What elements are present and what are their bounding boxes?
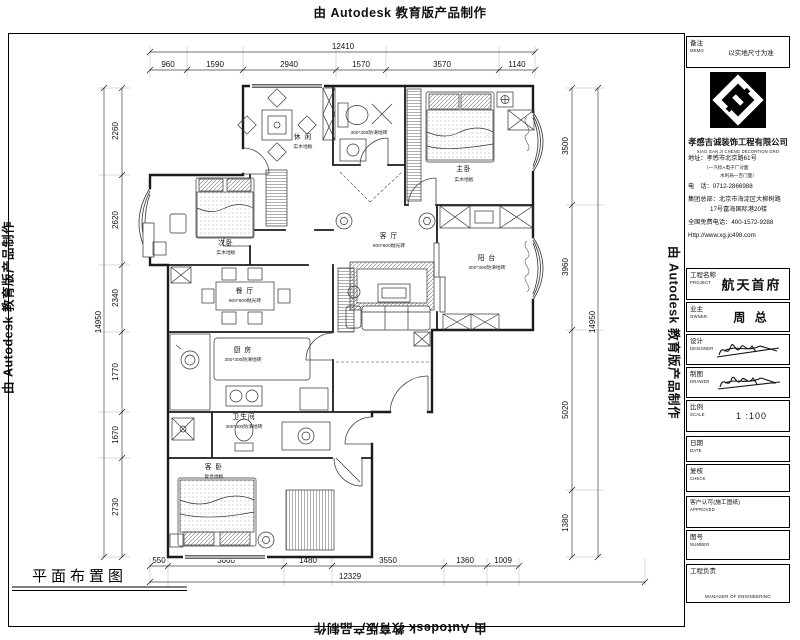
svg-text:3550: 3550 (379, 556, 397, 565)
svg-text:300*300防滑地砖: 300*300防滑地砖 (224, 356, 261, 363)
dimension-labels-left: 14950 2260 2620 2340 1770 1670 2730 (94, 122, 120, 516)
svg-text:300*300防滑地砖: 300*300防滑地砖 (468, 264, 505, 271)
address-note-1: （一汽综A电子厂对面 (688, 165, 789, 172)
room-label-dining: 餐 厅 (236, 286, 254, 295)
svg-text:1670: 1670 (111, 426, 120, 444)
company-block: 孝感吉诚装饰工程有限公司 XIAO GAN JI CHENG DECORTION… (686, 70, 790, 154)
svg-text:实木地板: 实木地板 (216, 249, 235, 256)
dim-top-total: 12410 (332, 42, 355, 51)
svg-text:800*800抛光砖: 800*800抛光砖 (373, 242, 405, 249)
company-logo-icon (710, 72, 766, 128)
dimension-labels-top: 12410 960 1590 2940 1570 3570 1140 (161, 42, 526, 69)
room-label-bath-top: 300*300防滑地砖 (350, 129, 387, 136)
svg-text:550: 550 (152, 556, 166, 565)
hq-line1: 北京市海淀区大柳树路 (719, 196, 781, 203)
scale-row: 比例 SCALE 1 :100 (686, 400, 790, 432)
room-label-master: 主卧 (456, 164, 472, 173)
hotline-value: 400-1572-9288 (731, 219, 773, 226)
hq-label: 集团总部： (688, 196, 719, 203)
project-name: 航天首府 (717, 275, 786, 294)
svg-text:1590: 1590 (206, 60, 224, 69)
memo-value: 以实地尺寸为准 (715, 47, 787, 57)
room-label-living: 客 厅 (380, 231, 398, 240)
furniture-guest-bedroom (170, 458, 360, 550)
svg-text:2340: 2340 (111, 289, 120, 307)
check-label-en: CHECK (690, 476, 706, 481)
address-value: 孝感市北京路61号 (707, 155, 757, 162)
room-label-leisure: 休 闲 (294, 132, 312, 141)
memo-label-en: MEMO (690, 48, 704, 53)
dim-left-total: 14950 (94, 310, 103, 333)
designer-row: 设计 DESIGNER (686, 334, 790, 365)
svg-text:5020: 5020 (561, 401, 570, 419)
room-label-bath-bottom: 卫生间 (232, 412, 255, 421)
manager-row: 工程负责 MANAGER OF ENGINEERING (686, 564, 790, 603)
check-label: 复核 (690, 468, 706, 476)
scale-value: 1 :100 (717, 411, 786, 421)
phone-label: 电 话： (688, 183, 713, 190)
number-label-en: NUMBER (690, 542, 709, 547)
svg-text:2940: 2940 (280, 60, 298, 69)
drawer-row: 制图 DRAWER (686, 367, 790, 398)
svg-text:3500: 3500 (561, 137, 570, 155)
designer-label: 设计 (690, 338, 713, 346)
dim-bottom-total: 12329 (339, 572, 362, 581)
floor-plan: 12410 960 1590 2940 1570 3570 1140 14950… (0, 0, 800, 640)
svg-text:800*800抛光砖: 800*800抛光砖 (229, 297, 261, 304)
svg-text:3960: 3960 (561, 258, 570, 276)
room-label-kitchen: 厨 房 (234, 345, 252, 354)
website: Http://www.xg.jc498.com (688, 232, 789, 241)
project-label: 工程名称 (690, 272, 716, 280)
dimension-labels-right: 14950 3500 3960 5020 1380 (561, 137, 597, 532)
designer-signature (713, 337, 785, 363)
address-label: 地址： (688, 155, 707, 162)
contact-info: 地址：孝感市北京路61号 （一汽综A电子厂对面 水利局一百门面） 电 话：071… (688, 155, 789, 242)
hq-line2: 17号富海国际港20楼 (688, 206, 789, 215)
dimension-chain-right (566, 85, 604, 560)
number-label: 图号 (690, 534, 709, 542)
approved-label: 客户认可(施工图纸) (690, 500, 740, 507)
svg-text:实木地板: 实木地板 (293, 143, 312, 150)
company-name: 孝感吉诚装饰工程有限公司 (686, 136, 790, 148)
owner-label-en: OWNER (690, 314, 707, 319)
plan-title: 平面布置图 (12, 568, 187, 591)
furniture-leisure-room (238, 89, 316, 161)
room-label-guest: 客 卧 (205, 462, 223, 471)
hotline-label: 全国免费电话： (688, 219, 731, 226)
number-row: 图号 NUMBER (686, 530, 790, 560)
svg-text:平面布置图: 平面布置图 (32, 568, 127, 585)
furniture-bath-bottom (172, 418, 330, 451)
svg-text:复合地板: 复合地板 (204, 473, 223, 480)
owner-row: 业主 OWNER 周 总 (686, 302, 790, 332)
drawer-label-en: DRAWER (690, 379, 710, 384)
approved-label-en: APPROVED (690, 507, 740, 512)
furniture-master-bedroom (407, 89, 513, 201)
svg-text:1380: 1380 (561, 514, 570, 532)
room-label-balcony: 阳 台 (478, 253, 496, 262)
address-note-2: 水利局一百门面） (688, 173, 789, 180)
svg-text:1360: 1360 (456, 556, 474, 565)
svg-text:1140: 1140 (508, 60, 526, 69)
svg-text:1570: 1570 (352, 60, 370, 69)
memo-label: 备注 (690, 40, 704, 48)
date-label-en: DATE (690, 448, 703, 453)
project-label-en: PROJECT (690, 280, 716, 285)
svg-text:2260: 2260 (111, 122, 120, 140)
scale-label-en: SCALE (690, 412, 705, 417)
phone-value: 0712-2866988 (713, 183, 753, 190)
furniture-kitchen (170, 334, 328, 410)
svg-text:3570: 3570 (433, 60, 451, 69)
owner-name: 周 总 (717, 309, 786, 326)
designer-label-en: DESIGNER (690, 346, 713, 351)
manager-label-en: MANAGER OF ENGINEERING (687, 594, 789, 599)
approved-row: 客户认可(施工图纸) APPROVED (686, 496, 790, 528)
svg-text:1770: 1770 (111, 363, 120, 381)
svg-text:2620: 2620 (111, 211, 120, 229)
dim-right-total: 14950 (588, 310, 597, 333)
svg-text:实木地板: 实木地板 (454, 176, 473, 183)
drawer-label: 制图 (690, 371, 710, 379)
svg-text:2730: 2730 (111, 498, 120, 516)
scale-label: 比例 (690, 404, 705, 412)
furniture-dining (171, 267, 290, 324)
check-row: 复核 CHECK (686, 464, 790, 492)
manager-label: 工程负责 (690, 568, 716, 576)
memo-row: 备注 MEMO 以实地尺寸为准 (686, 36, 790, 68)
svg-text:300*300防滑地砖: 300*300防滑地砖 (225, 423, 262, 430)
company-name-en: XIAO GAN JI CHENG DECORTION GRO (686, 149, 790, 154)
svg-text:1009: 1009 (494, 556, 512, 565)
project-row: 工程名称 PROJECT 航天首府 (686, 268, 790, 300)
room-label-second: 次卧 (218, 238, 234, 247)
svg-text:960: 960 (161, 60, 175, 69)
date-label: 日期 (690, 440, 703, 448)
date-row: 日期 DATE (686, 436, 790, 462)
drawer-signature (713, 370, 785, 396)
owner-label: 业主 (690, 306, 707, 314)
